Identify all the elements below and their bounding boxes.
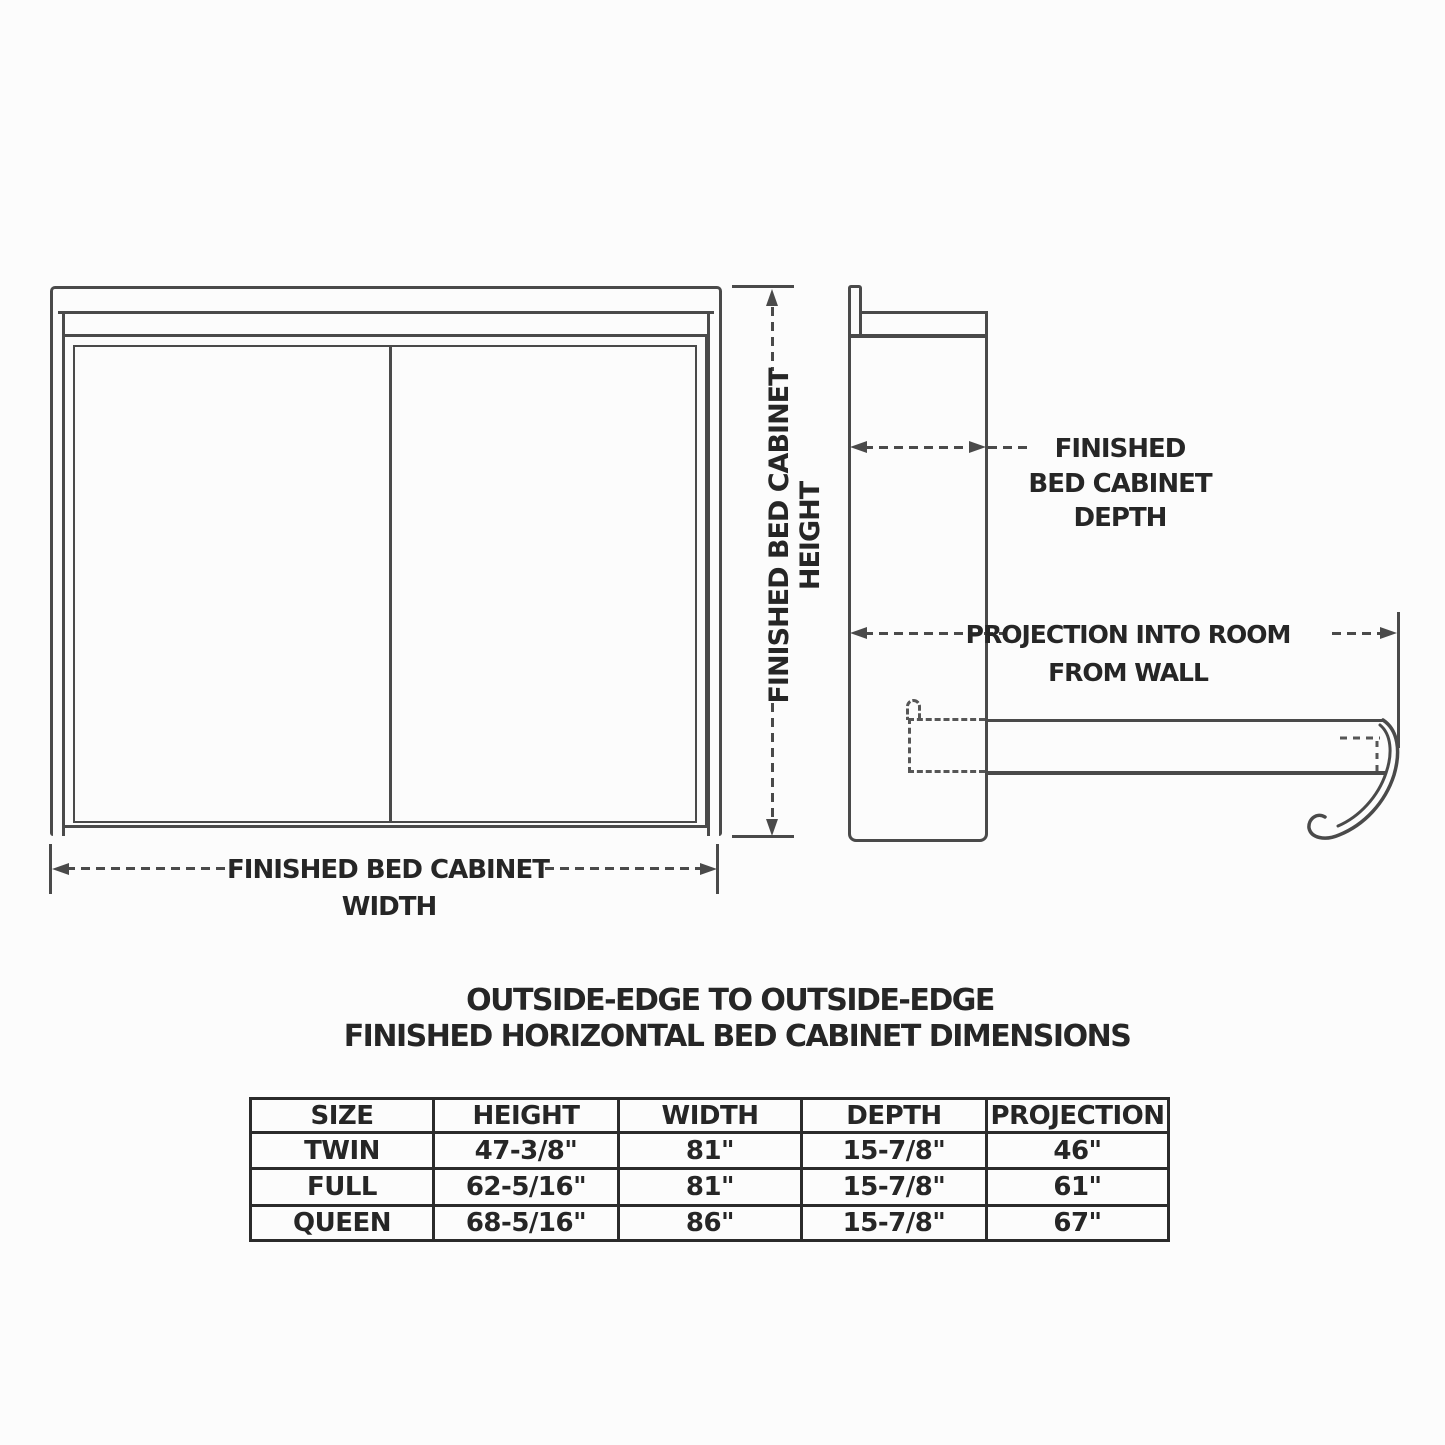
cell-size: FULL xyxy=(251,1169,434,1206)
table-title-line2: FINISHED HORIZONTAL BED CABINET DIMENSIO… xyxy=(337,1020,1137,1054)
table-title-line1: OUTSIDE-EDGE TO OUTSIDE-EDGE xyxy=(380,984,1080,1018)
cell-size: QUEEN xyxy=(251,1206,434,1241)
width-label-line2: WIDTH xyxy=(289,892,489,922)
cell-projection: 67" xyxy=(987,1206,1169,1241)
projection-ext-line xyxy=(1397,612,1400,748)
projection-label-line2: FROM WALL xyxy=(1028,658,1228,688)
table-header-row: SIZE HEIGHT WIDTH DEPTH PROJECTION xyxy=(251,1099,1169,1133)
door-inner-frame xyxy=(73,345,697,823)
header-height: HEIGHT xyxy=(434,1099,619,1133)
cell-depth: 15-7/8" xyxy=(802,1206,987,1241)
table-row: TWIN 47-3/8" 81" 15-7/8" 46" xyxy=(251,1133,1169,1169)
depth-label-line2: BED CABINET xyxy=(1010,469,1230,499)
depth-arrowhead-right-icon xyxy=(969,441,986,453)
width-label-line1: FINISHED BED CABINET xyxy=(158,855,618,885)
cell-depth: 15-7/8" xyxy=(802,1133,987,1169)
hidden-pivot-dashed-hook xyxy=(906,699,921,720)
cell-projection: 46" xyxy=(987,1133,1169,1169)
door-center-divider xyxy=(389,346,392,823)
dimensions-table: SIZE HEIGHT WIDTH DEPTH PROJECTION TWIN … xyxy=(249,1097,1170,1242)
depth-label-line1: FINISHED xyxy=(1020,434,1220,464)
cell-width: 81" xyxy=(619,1169,802,1206)
cell-projection: 61" xyxy=(987,1169,1169,1206)
cell-size: TWIN xyxy=(251,1133,434,1169)
cell-width: 86" xyxy=(619,1206,802,1241)
height-arrowhead-bottom-icon xyxy=(766,819,778,836)
header-projection: PROJECTION xyxy=(987,1099,1169,1133)
table-row: QUEEN 68-5/16" 86" 15-7/8" 67" xyxy=(251,1206,1169,1241)
cell-width: 81" xyxy=(619,1133,802,1169)
projection-dim-line-right xyxy=(1332,632,1382,635)
depth-dim-line xyxy=(864,446,970,449)
header-size: SIZE xyxy=(251,1099,434,1133)
height-label: FINISHED BED CABINET HEIGHT xyxy=(764,256,826,816)
projection-label-line1: PROJECTION INTO ROOM xyxy=(955,620,1301,650)
cell-height: 68-5/16" xyxy=(434,1206,619,1241)
cell-depth: 15-7/8" xyxy=(802,1169,987,1206)
depth-label-line3: DEPTH xyxy=(1020,503,1220,533)
bed-cabinet-dimension-drawing: FINISHED BED CABINET WIDTH FINISHED BED … xyxy=(0,0,1445,1445)
cell-height: 62-5/16" xyxy=(434,1169,619,1206)
height-label-line2: HEIGHT xyxy=(795,256,826,816)
width-arrowhead-right-icon xyxy=(700,863,717,875)
header-width: WIDTH xyxy=(619,1099,802,1133)
cell-height: 47-3/8" xyxy=(434,1133,619,1169)
header-depth: DEPTH xyxy=(802,1099,987,1133)
folding-leg-curve xyxy=(1295,705,1425,855)
top-rail-line xyxy=(58,311,714,314)
table-row: FULL 62-5/16" 81" 15-7/8" 61" xyxy=(251,1169,1169,1206)
height-ext-tick-bottom xyxy=(732,835,794,838)
height-label-line1: FINISHED BED CABINET xyxy=(764,256,795,816)
hidden-mechanism-dashed-rect xyxy=(908,718,985,773)
projection-arrowhead-right-icon xyxy=(1380,627,1397,639)
side-top-lip-line xyxy=(860,311,988,314)
